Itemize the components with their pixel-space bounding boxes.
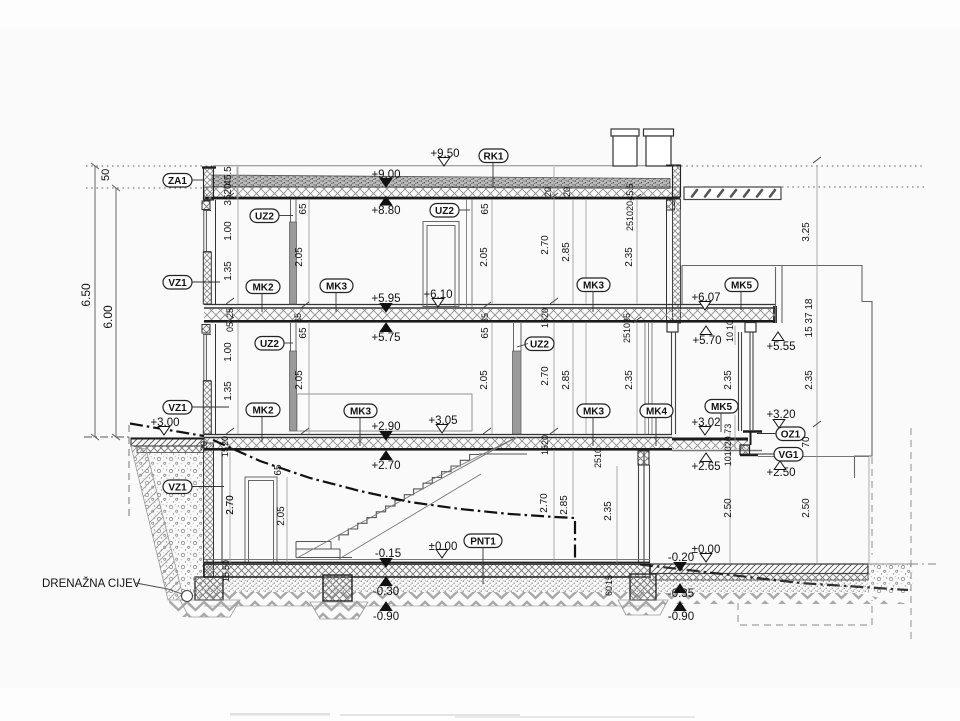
svg-text:10: 10	[725, 320, 735, 330]
svg-text:2.70: 2.70	[225, 495, 236, 515]
svg-text:45.5: 45.5	[223, 166, 234, 186]
svg-text:2.70: 2.70	[539, 493, 550, 513]
svg-text:OZ1: OZ1	[781, 429, 801, 440]
svg-text:2.85: 2.85	[559, 495, 570, 515]
svg-text:UZ2: UZ2	[260, 339, 279, 350]
svg-text:2.35: 2.35	[603, 501, 614, 521]
svg-text:+2.65: +2.65	[691, 461, 720, 473]
svg-text:-0.90: -0.90	[668, 611, 694, 623]
svg-text:UZ2: UZ2	[530, 339, 549, 350]
svg-text:DRENAŽNA CIJEV: DRENAŽNA CIJEV	[42, 577, 141, 590]
svg-text:VZ1: VZ1	[168, 482, 187, 493]
svg-text:2.05: 2.05	[294, 370, 305, 390]
svg-text:65: 65	[480, 327, 491, 339]
svg-text:-0.90: -0.90	[373, 611, 399, 623]
svg-text:15: 15	[540, 318, 550, 328]
svg-text:20: 20	[220, 436, 230, 446]
svg-text:25: 25	[593, 458, 603, 468]
svg-text:65: 65	[298, 327, 309, 339]
svg-text:50: 50	[221, 560, 231, 570]
svg-text:15: 15	[540, 445, 550, 455]
svg-text:20: 20	[540, 435, 550, 445]
svg-text:2.70: 2.70	[540, 366, 551, 386]
svg-text:10: 10	[593, 448, 603, 458]
svg-text:2.35: 2.35	[723, 370, 734, 390]
svg-text:2.85: 2.85	[561, 242, 572, 262]
svg-text:15: 15	[220, 447, 230, 457]
svg-text:MK3: MK3	[350, 406, 372, 417]
svg-text:20: 20	[223, 183, 234, 195]
svg-text:2.70: 2.70	[540, 235, 551, 255]
svg-text:20: 20	[540, 308, 550, 318]
svg-text:10: 10	[625, 211, 635, 221]
svg-text:1.00: 1.00	[223, 342, 234, 362]
svg-text:2.50: 2.50	[723, 498, 734, 518]
svg-text:UZ2: UZ2	[255, 211, 274, 222]
svg-text:MK5: MK5	[711, 402, 733, 413]
svg-text:-0.30: -0.30	[373, 586, 399, 598]
svg-text:MK4: MK4	[646, 406, 668, 417]
svg-text:2.50: 2.50	[801, 498, 812, 518]
svg-text:2.05: 2.05	[276, 506, 287, 526]
svg-text:2.05: 2.05	[479, 247, 490, 267]
svg-text:2.35: 2.35	[804, 370, 815, 390]
svg-text:25: 25	[625, 221, 635, 231]
svg-text:10: 10	[725, 332, 735, 342]
svg-text:35: 35	[223, 194, 234, 206]
svg-text:35: 35	[293, 313, 303, 323]
svg-text:6.00: 6.00	[101, 305, 115, 329]
svg-text:45.5: 45.5	[625, 183, 635, 201]
svg-text:65: 65	[273, 464, 284, 476]
svg-text:05: 05	[225, 322, 235, 332]
svg-text:6.50: 6.50	[79, 283, 93, 307]
svg-text:2.35: 2.35	[624, 370, 635, 390]
svg-text:MK2: MK2	[252, 282, 274, 293]
svg-text:15: 15	[604, 575, 614, 585]
svg-text:VZ1: VZ1	[168, 278, 187, 289]
svg-text:3.25: 3.25	[801, 222, 812, 242]
svg-text:PNT1: PNT1	[470, 536, 496, 547]
svg-text:35: 35	[480, 313, 490, 323]
svg-text:10: 10	[622, 323, 632, 333]
svg-text:2.35: 2.35	[624, 247, 635, 267]
svg-text:+5.55: +5.55	[766, 341, 795, 353]
svg-text:+8.80: +8.80	[371, 205, 400, 217]
svg-text:MK3: MK3	[583, 406, 605, 417]
svg-text:65: 65	[298, 203, 309, 215]
svg-text:60: 60	[604, 586, 614, 596]
svg-text:MK2: MK2	[252, 405, 274, 416]
svg-text:70: 70	[801, 436, 812, 448]
svg-text:RK1: RK1	[483, 151, 503, 162]
svg-text:15: 15	[221, 572, 231, 582]
svg-text:VG1: VG1	[778, 450, 798, 461]
svg-text:2.05: 2.05	[479, 370, 490, 390]
svg-text:50: 50	[100, 169, 112, 181]
svg-text:MK3: MK3	[326, 281, 348, 292]
svg-text:65: 65	[480, 203, 491, 215]
svg-text:15 37 18: 15 37 18	[804, 298, 815, 337]
svg-text:25: 25	[225, 308, 235, 318]
svg-text:+5.75: +5.75	[371, 332, 400, 344]
svg-text:1.35: 1.35	[223, 381, 234, 401]
svg-text:MK5: MK5	[731, 280, 753, 291]
svg-text:101020 73: 101020 73	[723, 424, 733, 467]
svg-text:UZ2: UZ2	[435, 206, 454, 217]
svg-text:+2.70: +2.70	[371, 460, 400, 472]
svg-text:MK3: MK3	[583, 280, 605, 291]
svg-text:20: 20	[562, 187, 572, 197]
svg-text:2.85: 2.85	[561, 370, 572, 390]
svg-text:ZA1: ZA1	[168, 176, 187, 187]
svg-text:20: 20	[625, 201, 635, 211]
svg-text:35: 35	[622, 313, 632, 323]
svg-text:20: 20	[199, 441, 209, 451]
svg-text:20: 20	[543, 187, 553, 197]
svg-text:+5.70: +5.70	[692, 335, 721, 347]
svg-text:2.05: 2.05	[294, 247, 305, 267]
svg-text:25: 25	[622, 333, 632, 343]
svg-text:1.35: 1.35	[223, 261, 234, 281]
svg-text:VZ1: VZ1	[168, 403, 187, 414]
svg-text:1.00: 1.00	[223, 221, 234, 241]
